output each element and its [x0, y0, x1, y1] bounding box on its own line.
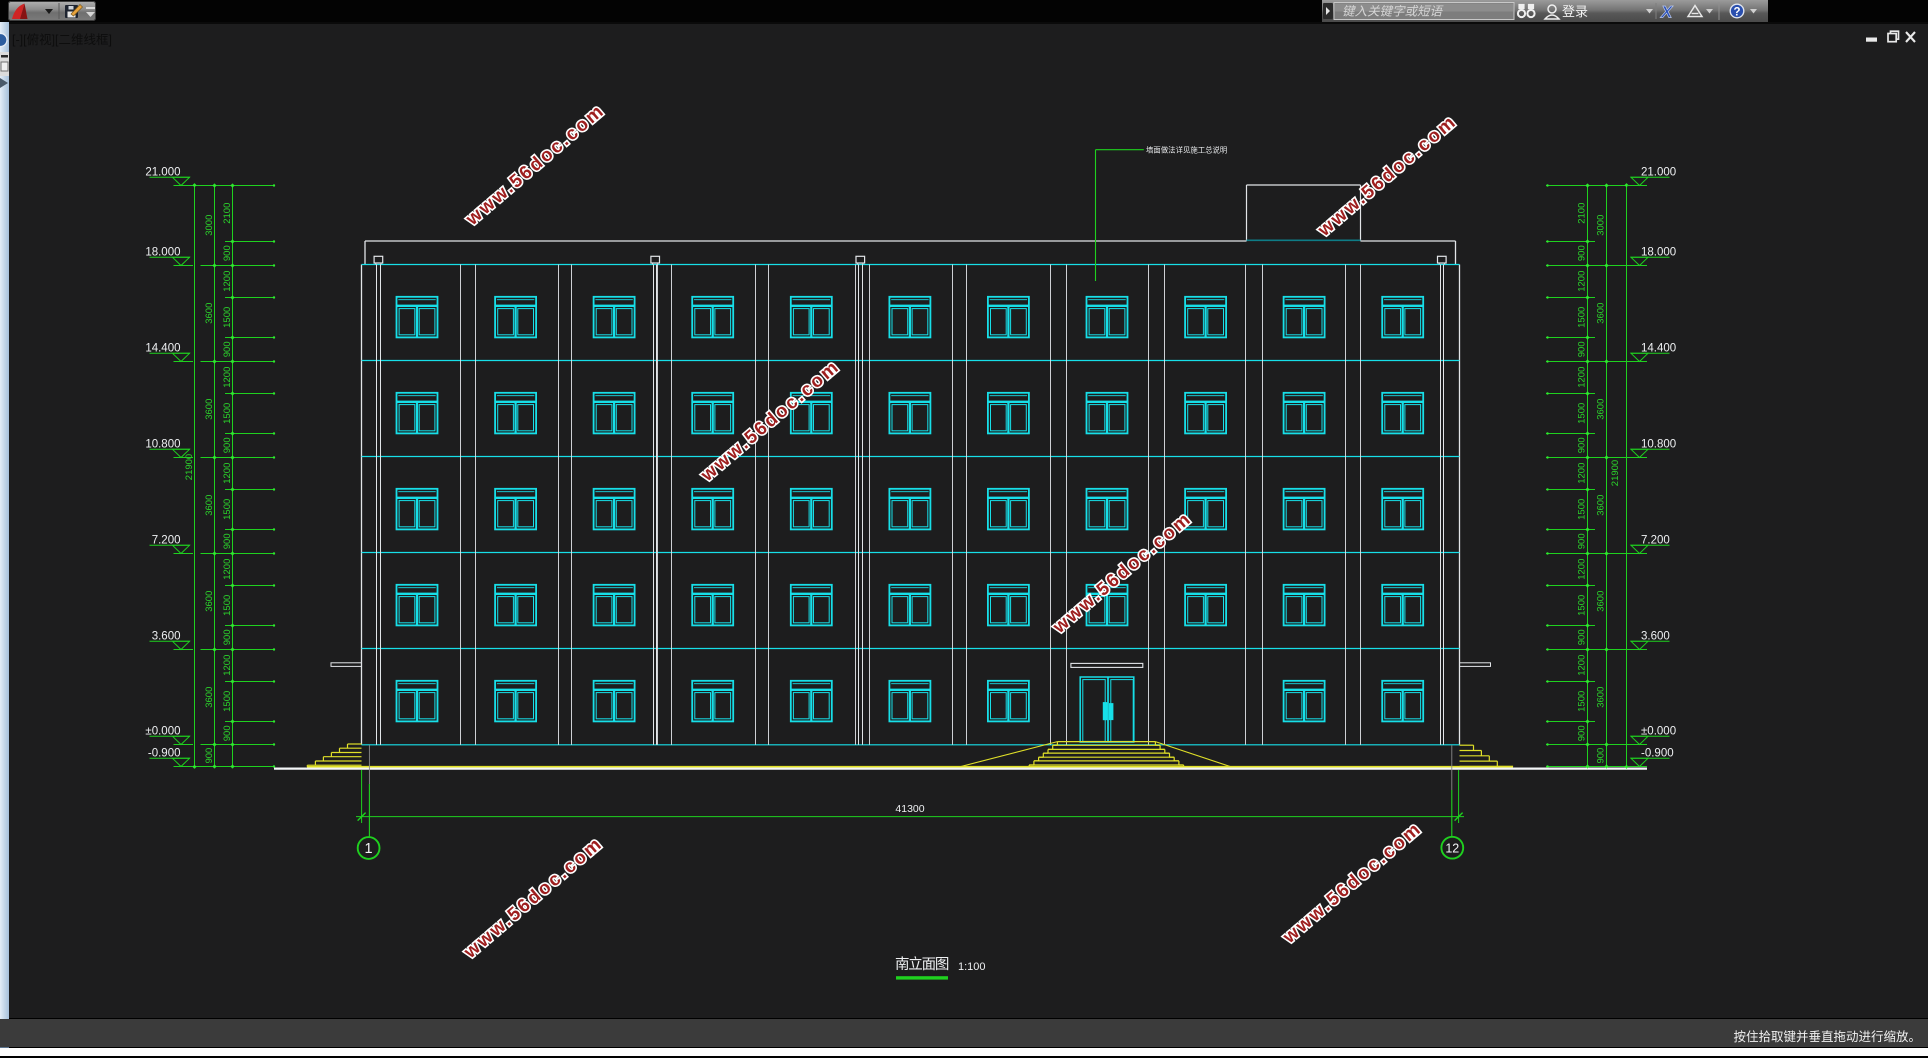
svg-text:3.600: 3.600 [152, 630, 181, 642]
svg-text:-0.900: -0.900 [148, 747, 181, 759]
svg-text:21900: 21900 [1610, 460, 1621, 486]
svg-text:18.000: 18.000 [145, 246, 180, 258]
svg-text:14.400: 14.400 [1641, 342, 1676, 354]
svg-text:900: 900 [1577, 533, 1588, 549]
svg-text:3600: 3600 [204, 303, 215, 324]
svg-text:www.56doc.com: www.56doc.com [1313, 110, 1461, 241]
svg-text:www.56doc.com: www.56doc.com [461, 99, 609, 230]
svg-text:3600: 3600 [1596, 495, 1607, 516]
svg-text:900: 900 [222, 629, 233, 645]
svg-text:1500: 1500 [1577, 403, 1588, 424]
svg-text:www.56doc.com: www.56doc.com [459, 832, 607, 963]
svg-text:1500: 1500 [222, 403, 233, 424]
svg-text:1500: 1500 [222, 691, 233, 712]
svg-text:21.000: 21.000 [1641, 166, 1676, 178]
svg-text:21.000: 21.000 [145, 166, 180, 178]
svg-text:900: 900 [1577, 245, 1588, 261]
svg-text:1500: 1500 [222, 595, 233, 616]
svg-text:±0.000: ±0.000 [145, 725, 180, 737]
svg-text:900: 900 [222, 437, 233, 453]
svg-text:南立面图: 南立面图 [895, 956, 949, 973]
svg-text:1200: 1200 [222, 367, 233, 388]
svg-text:10.800: 10.800 [1641, 438, 1676, 450]
svg-text:1500: 1500 [1577, 595, 1588, 616]
svg-text:2100: 2100 [222, 203, 233, 224]
svg-text:7.200: 7.200 [1641, 534, 1670, 546]
svg-text:1200: 1200 [222, 463, 233, 484]
svg-text:?: ? [1733, 7, 1740, 19]
svg-text:3000: 3000 [204, 215, 215, 236]
svg-text:1200: 1200 [1577, 271, 1588, 292]
svg-text:1500: 1500 [222, 307, 233, 328]
svg-text:www.56doc.com: www.56doc.com [696, 355, 844, 486]
svg-text:2100: 2100 [1577, 203, 1588, 224]
svg-text:3600: 3600 [204, 591, 215, 612]
svg-text:41300: 41300 [895, 803, 924, 815]
svg-text:10.800: 10.800 [145, 438, 180, 450]
svg-text:3600: 3600 [1596, 303, 1607, 324]
svg-text:1200: 1200 [222, 655, 233, 676]
svg-text:3.600: 3.600 [1641, 630, 1670, 642]
svg-text:3000: 3000 [1596, 215, 1607, 236]
svg-text:1200: 1200 [1577, 463, 1588, 484]
svg-text:900: 900 [1577, 341, 1588, 357]
svg-text:1200: 1200 [1577, 559, 1588, 580]
svg-text:1200: 1200 [222, 559, 233, 580]
svg-text:1500: 1500 [222, 499, 233, 520]
svg-text:1200: 1200 [1577, 655, 1588, 676]
svg-text:±0.000: ±0.000 [1641, 725, 1676, 737]
svg-text:www.56doc.com: www.56doc.com [1278, 817, 1426, 948]
svg-text:1500: 1500 [1577, 307, 1588, 328]
svg-text:12: 12 [1445, 842, 1459, 856]
svg-text:7.200: 7.200 [152, 534, 181, 546]
svg-text:900: 900 [222, 341, 233, 357]
svg-text:900: 900 [222, 245, 233, 261]
svg-text:3600: 3600 [1596, 591, 1607, 612]
svg-text:900: 900 [1577, 725, 1588, 741]
svg-text:X: X [1660, 3, 1674, 22]
svg-text:3600: 3600 [1596, 399, 1607, 420]
svg-text:900: 900 [222, 725, 233, 741]
svg-text:1200: 1200 [1577, 367, 1588, 388]
svg-text:1500: 1500 [1577, 499, 1588, 520]
svg-text:键入关键字或短语: 键入关键字或短语 [1342, 5, 1445, 19]
svg-text:3600: 3600 [1596, 687, 1607, 708]
svg-text:18.000: 18.000 [1641, 246, 1676, 258]
svg-text:3600: 3600 [204, 495, 215, 516]
svg-text:900: 900 [222, 533, 233, 549]
svg-text:14.400: 14.400 [145, 342, 180, 354]
svg-text:1:100: 1:100 [958, 961, 986, 973]
svg-text:墙面做法详见施工总说明: 墙面做法详见施工总说明 [1146, 146, 1227, 155]
svg-text:3600: 3600 [204, 399, 215, 420]
svg-text:3600: 3600 [204, 687, 215, 708]
svg-text:900: 900 [204, 748, 215, 764]
svg-text:1500: 1500 [1577, 691, 1588, 712]
svg-text:-0.900: -0.900 [1641, 747, 1674, 759]
svg-text:900: 900 [1577, 629, 1588, 645]
svg-text:1: 1 [365, 841, 373, 857]
svg-text:900: 900 [1577, 437, 1588, 453]
svg-text:登录: 登录 [1562, 4, 1588, 19]
svg-text:1200: 1200 [222, 271, 233, 292]
svg-text:900: 900 [1596, 748, 1607, 764]
